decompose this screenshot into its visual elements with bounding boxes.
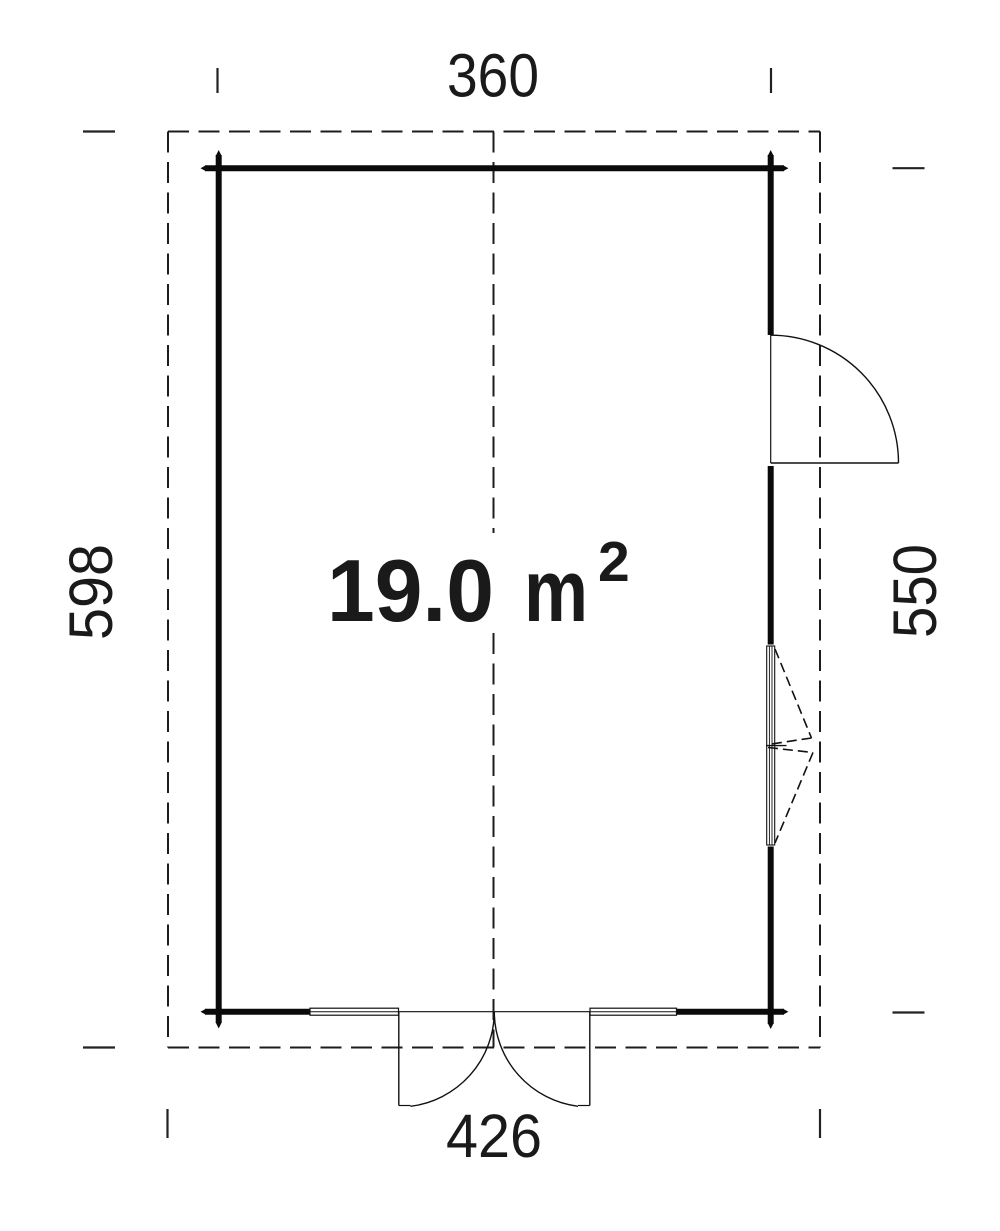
svg-text:2: 2: [598, 530, 630, 594]
svg-text:19.0: 19.0: [327, 541, 494, 640]
svg-text:360: 360: [447, 42, 539, 110]
svg-text:550: 550: [881, 544, 949, 638]
svg-text:598: 598: [57, 544, 125, 640]
svg-text:m: m: [524, 541, 588, 640]
svg-text:426: 426: [446, 1102, 542, 1170]
